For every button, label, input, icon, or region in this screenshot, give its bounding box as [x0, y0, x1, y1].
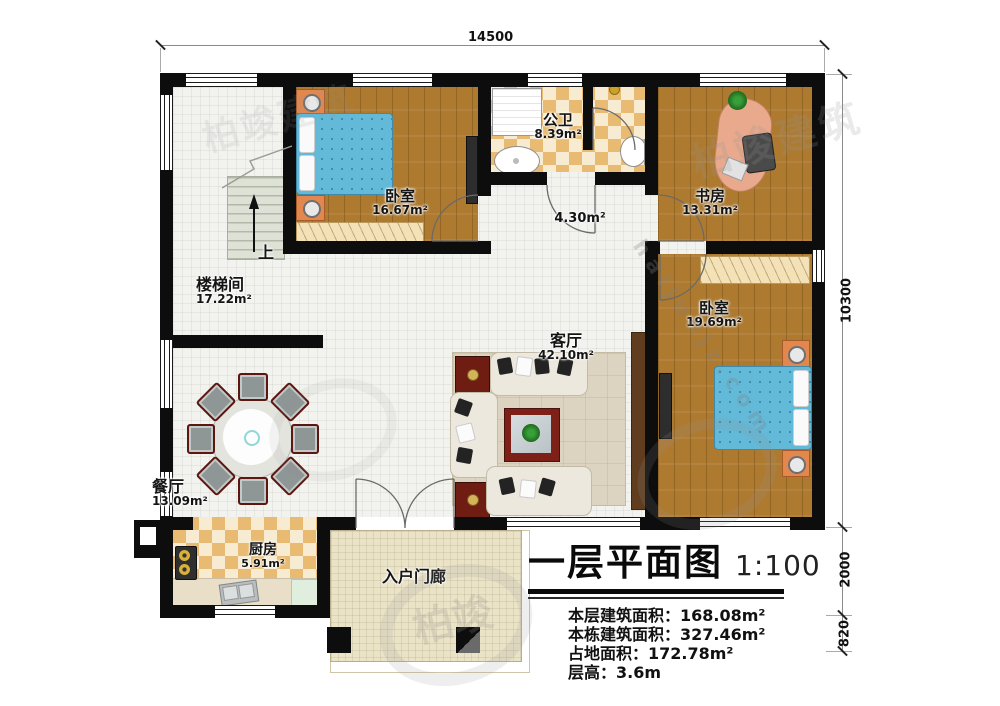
dim-label-right-10300: 10300	[840, 270, 855, 332]
room-name: 入户门廊	[372, 568, 456, 585]
stair-break-line	[222, 146, 292, 188]
dim-label-right-2000: 2000	[839, 542, 854, 598]
info-line: 层高：3.6m	[568, 663, 828, 682]
room-area: 4.30m²	[540, 212, 620, 226]
room-label-kitchen: 厨房 5.91m²	[226, 543, 300, 570]
entry-door-arc	[356, 479, 454, 528]
info-value: 327.46m²	[680, 625, 765, 644]
room-area: 13.31m²	[668, 204, 752, 217]
stairs-up-label: 上	[254, 244, 278, 261]
room-name: 书房	[668, 188, 752, 204]
extension-line	[160, 48, 161, 72]
room-name: 餐厅	[152, 478, 232, 495]
title-underline-thin	[528, 597, 784, 599]
info-label: 占地面积：	[568, 644, 648, 663]
room-name: 卧室	[672, 300, 756, 316]
stairs-up-text: 上	[254, 244, 278, 261]
door-swing-overlay	[0, 0, 1000, 706]
bedroom2-door-arc	[660, 254, 706, 300]
room-label-bedroom2: 卧室 19.69m²	[672, 300, 756, 329]
room-area: 17.22m²	[196, 293, 276, 306]
dim-line-top	[160, 45, 825, 46]
info-line: 本栋建筑面积：327.46m²	[568, 625, 828, 644]
room-label-stairwell: 楼梯间 17.22m²	[196, 276, 276, 306]
room-name: 厨房	[226, 543, 300, 558]
room-area: 42.10m²	[528, 349, 604, 362]
room-area: 5.91m²	[226, 558, 300, 570]
room-label-porch: 入户门廊	[372, 568, 456, 585]
title-underline-thick	[528, 589, 784, 594]
room-name: 客厅	[528, 332, 604, 349]
info-label: 层高：	[568, 663, 616, 682]
room-name: 公卫	[520, 112, 596, 128]
title-block: 一层平面图 1:100 本层建筑面积：168.08m² 本栋建筑面积：327.4…	[528, 532, 828, 682]
info-value: 168.08m²	[680, 606, 765, 625]
room-area: 8.39m²	[520, 128, 596, 141]
info-line: 占地面积：172.78m²	[568, 644, 828, 663]
extension-line	[826, 527, 852, 528]
room-label-dining: 餐厅 13.09m²	[152, 478, 232, 508]
room-label-bedroom1: 卧室 16.67m²	[355, 188, 445, 217]
room-label-living: 客厅 42.10m²	[528, 332, 604, 362]
room-label-bathroom: 公卫 8.39m²	[520, 112, 596, 141]
room-name: 楼梯间	[196, 276, 276, 293]
room-area: 19.69m²	[672, 316, 756, 329]
room-label-corridor: 4.30m²	[540, 212, 620, 226]
info-line: 本层建筑面积：168.08m²	[568, 606, 828, 625]
dim-label-top: 14500	[465, 30, 516, 45]
room-area: 16.67m²	[355, 204, 445, 217]
room-name: 卧室	[355, 188, 445, 204]
floorplan-canvas: 楼梯间 17.22m² 卧室 16.67m² 公卫 8.39m² 书房 13.3…	[0, 0, 1000, 706]
extension-line	[826, 74, 852, 75]
plan-title: 一层平面图	[528, 532, 723, 586]
info-label: 本栋建筑面积：	[568, 625, 680, 644]
room-area: 13.09m²	[152, 495, 232, 508]
info-value: 3.6m	[616, 663, 661, 682]
info-value: 172.78m²	[648, 644, 733, 663]
bathroom-inner-door-arc	[593, 108, 635, 150]
room-label-study: 书房 13.31m²	[668, 188, 752, 217]
plan-scale: 1:100	[735, 549, 821, 582]
extension-line	[824, 48, 825, 72]
info-label: 本层建筑面积：	[568, 606, 680, 625]
stair-arrow-head	[249, 194, 259, 209]
